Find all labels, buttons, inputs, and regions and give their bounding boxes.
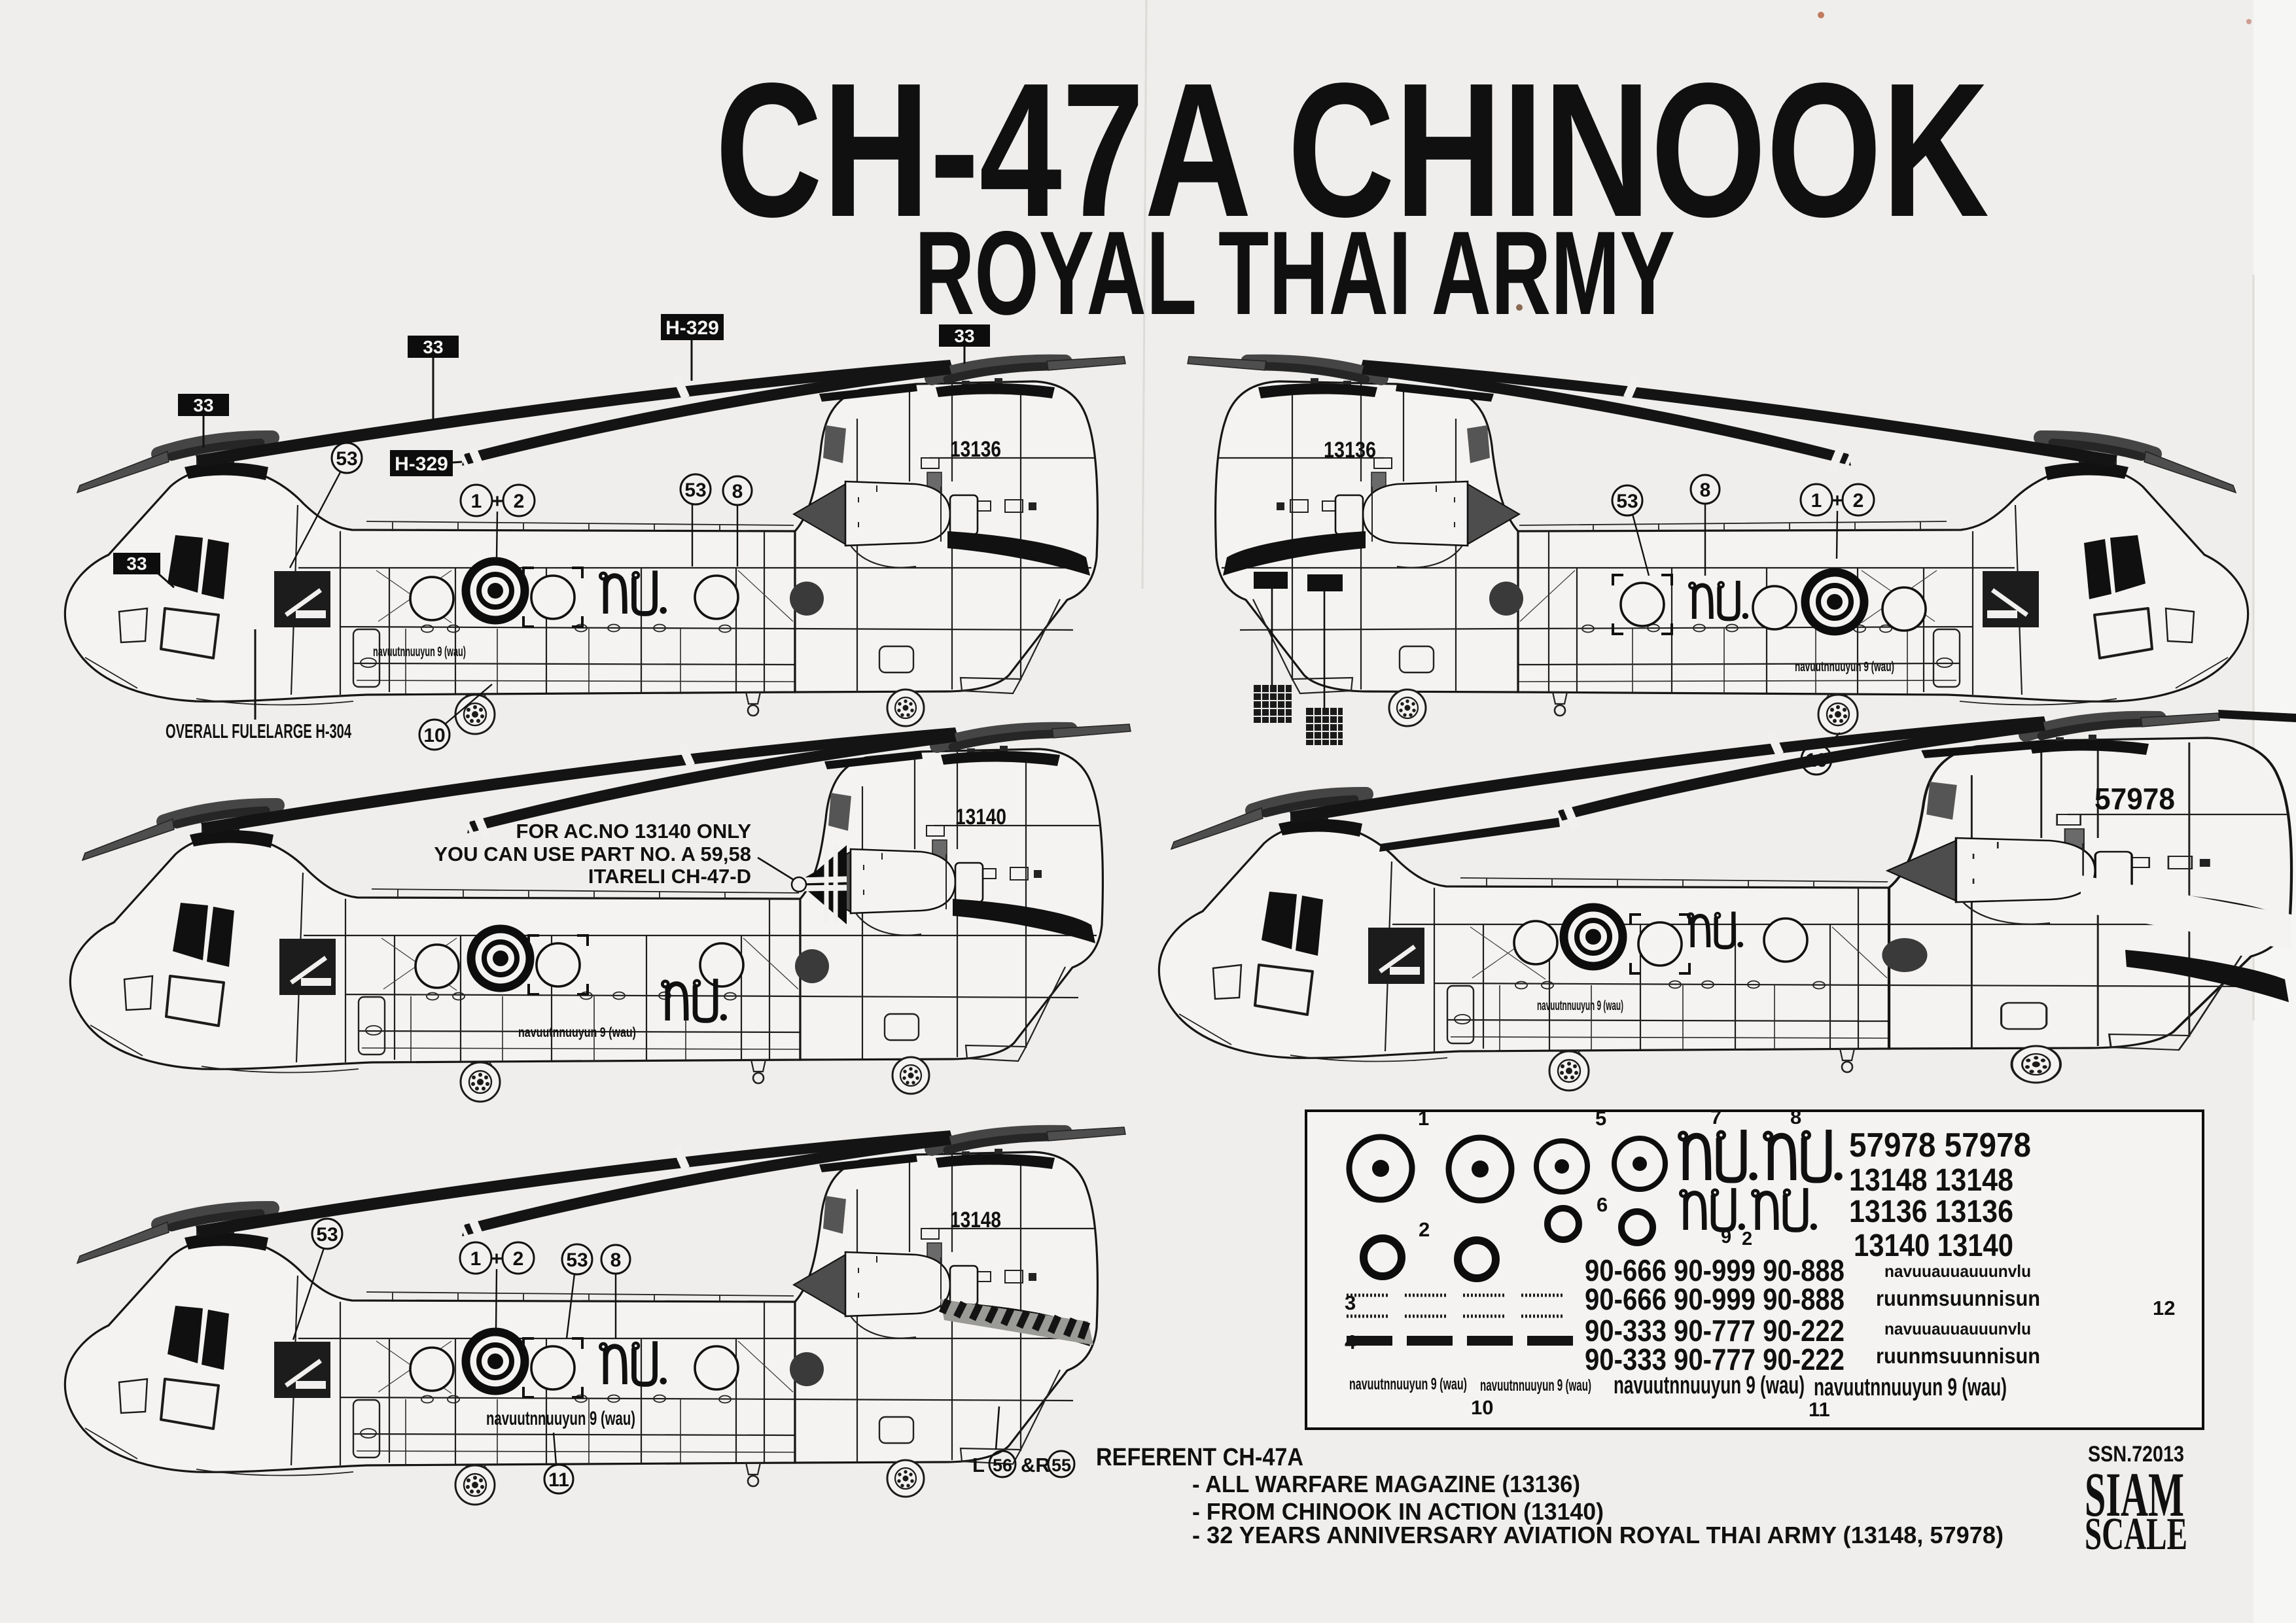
svg-text:53: 53 (336, 448, 357, 470)
svg-text:10: 10 (423, 725, 445, 746)
svg-text:3: 3 (1345, 1291, 1356, 1314)
svg-text:13140 13140: 13140 13140 (1854, 1229, 2013, 1263)
svg-text:navuutnnuuyun 9 (wau): navuutnnuuyun 9 (wau) (1537, 998, 1623, 1013)
svg-text:33: 33 (126, 553, 147, 574)
svg-text:56: 56 (993, 1456, 1012, 1475)
svg-text:+: + (1831, 490, 1843, 512)
svg-text:ruunmsuunnisun: ruunmsuunnisun (1876, 1286, 2040, 1310)
svg-text:2: 2 (514, 491, 525, 512)
svg-text:2: 2 (513, 1248, 524, 1270)
svg-text:13136: 13136 (1324, 438, 1376, 462)
svg-text:navuutnnuuyun 9 (wau): navuutnnuuyun 9 (wau) (518, 1025, 636, 1040)
svg-text:33: 33 (954, 326, 974, 346)
svg-text:- 32 YEARS ANNIVERSARY AVIATI: - 32 YEARS ANNIVERSARY AVIATION ROYAL TH… (1192, 1522, 2004, 1548)
svg-text:L: L (972, 1454, 985, 1476)
svg-text:57978: 57978 (2094, 782, 2175, 816)
svg-text:57978 57978: 57978 57978 (1849, 1126, 2031, 1164)
svg-text:2: 2 (1853, 490, 1864, 512)
svg-text:SCALE: SCALE (2085, 1509, 2187, 1560)
svg-text:2: 2 (1419, 1218, 1430, 1241)
svg-text:55: 55 (1051, 1456, 1071, 1475)
svg-text:navuuauuauuunvlu: navuuauuauuunvlu (1884, 1319, 2031, 1338)
svg-text:+: + (491, 1248, 503, 1270)
svg-text:OVERALL FULELARGE H-304: OVERALL FULELARGE H-304 (166, 720, 351, 742)
svg-text:navuutnnuuyun 9 (wau): navuutnnuuyun 9 (wau) (373, 644, 466, 659)
svg-text:navuutnnuuyun 9 (wau): navuutnnuuyun 9 (wau) (1480, 1376, 1591, 1395)
svg-text:9: 9 (1721, 1227, 1731, 1248)
svg-text:90-666 90-999 90-888: 90-666 90-999 90-888 (1585, 1282, 1845, 1316)
svg-text:navuutnnuuyun 9 (wau): navuutnnuuyun 9 (wau) (1614, 1372, 1805, 1399)
svg-text:8: 8 (1790, 1106, 1801, 1128)
svg-text:+: + (491, 491, 503, 512)
svg-text:H-329: H-329 (395, 453, 448, 475)
svg-text:12: 12 (2153, 1297, 2175, 1319)
svg-text:8: 8 (1700, 480, 1711, 501)
svg-text:13148 13148: 13148 13148 (1849, 1163, 2013, 1198)
svg-text:ruunmsuunnisun: ruunmsuunnisun (1876, 1344, 2040, 1368)
svg-text:1: 1 (1811, 490, 1822, 512)
svg-text:13148: 13148 (950, 1208, 1001, 1232)
svg-text:11: 11 (1809, 1398, 1830, 1421)
svg-text:8: 8 (610, 1249, 622, 1271)
svg-text:navuutnnuuyun 9 (wau): navuutnnuuyun 9 (wau) (1349, 1375, 1467, 1393)
svg-text:- ALL WARFARE MAGAZINE (13136): - ALL WARFARE MAGAZINE (13136) (1192, 1471, 1580, 1497)
svg-text:33: 33 (423, 337, 443, 357)
svg-text:53: 53 (684, 480, 706, 501)
svg-text:13136: 13136 (950, 437, 1001, 462)
svg-text:&R: &R (1021, 1454, 1050, 1476)
svg-text:navuuauuauuunvlu: navuuauuauuunvlu (1884, 1261, 2031, 1281)
svg-text:navuutnnuuyun 9 (wau): navuutnnuuyun 9 (wau) (1795, 659, 1894, 674)
svg-text:1: 1 (470, 1248, 482, 1270)
svg-text:13136 13136: 13136 13136 (1849, 1195, 2013, 1229)
svg-text:1: 1 (471, 491, 482, 512)
svg-text:6: 6 (1597, 1193, 1608, 1216)
svg-text:navuutnnuuyun 9 (wau): navuutnnuuyun 9 (wau) (486, 1408, 635, 1429)
svg-text:11: 11 (548, 1469, 569, 1491)
svg-text:- FROM CHINOOK IN ACTION (131: - FROM CHINOOK IN ACTION (13140) (1192, 1498, 1604, 1525)
svg-text:ROYAL THAI ARMY: ROYAL THAI ARMY (915, 206, 1675, 340)
svg-text:1: 1 (1418, 1107, 1429, 1130)
svg-text:navuutnnuuyun 9 (wau): navuutnnuuyun 9 (wau) (1814, 1374, 2007, 1401)
svg-text:7: 7 (1710, 1106, 1722, 1128)
svg-text:53: 53 (316, 1224, 338, 1246)
svg-text:2: 2 (1742, 1229, 1752, 1249)
svg-text:10: 10 (1471, 1396, 1493, 1419)
svg-text:H-329: H-329 (665, 317, 719, 339)
svg-text:5: 5 (1595, 1107, 1606, 1130)
svg-text:13140: 13140 (955, 805, 1006, 829)
svg-text:ITARELI CH-47-D: ITARELI CH-47-D (588, 865, 751, 888)
svg-text:33: 33 (193, 395, 213, 415)
svg-text:8: 8 (732, 481, 743, 502)
svg-text:53: 53 (566, 1249, 588, 1271)
svg-text:YOU CAN USE PART NO. A 59,58: YOU CAN USE PART NO. A 59,58 (434, 843, 751, 865)
svg-text:REFERENT CH-47A: REFERENT CH-47A (1096, 1444, 1303, 1471)
svg-text:53: 53 (1616, 491, 1638, 512)
svg-text:FOR AC.NO 13140 ONLY: FOR AC.NO 13140 ONLY (516, 820, 752, 843)
